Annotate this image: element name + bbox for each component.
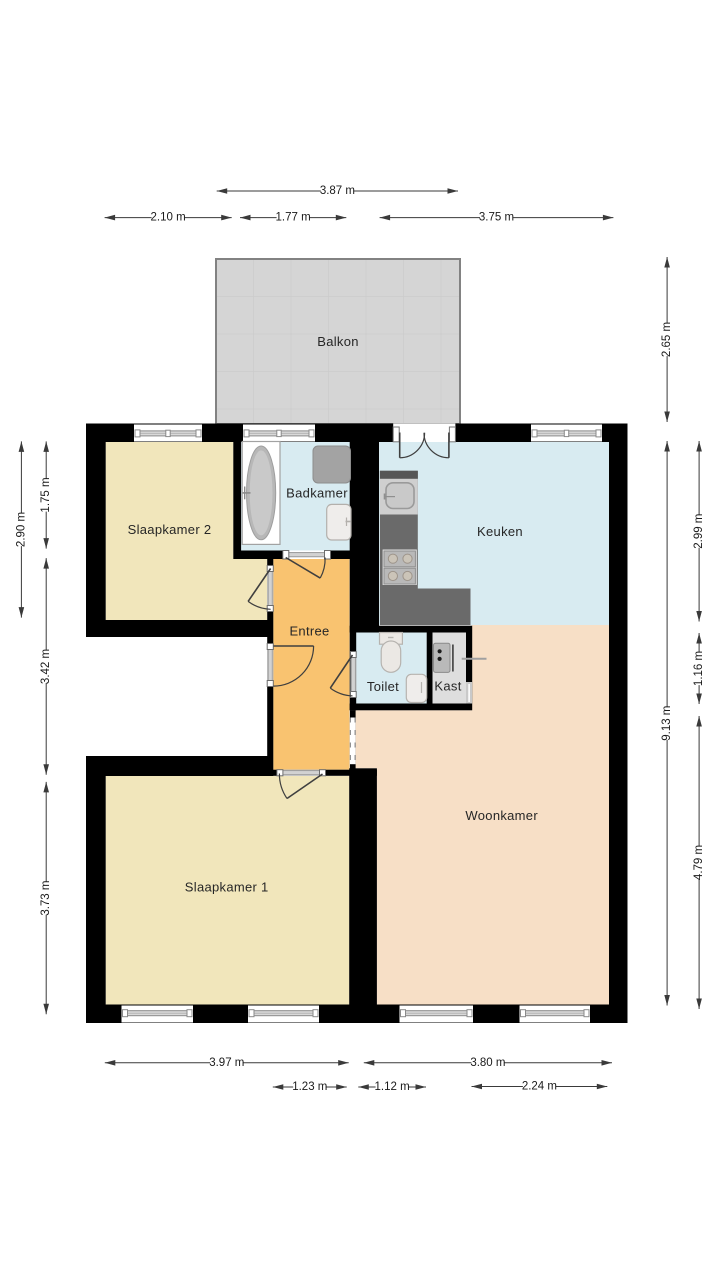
svg-text:2.90 m: 2.90 m [15,512,27,547]
svg-text:Toilet: Toilet [367,679,399,694]
svg-text:Woonkamer: Woonkamer [465,808,538,823]
svg-text:Slaapkamer 2: Slaapkamer 2 [128,522,212,537]
svg-text:Kast: Kast [434,678,461,693]
svg-text:1.23 m: 1.23 m [292,1081,327,1093]
svg-text:1.75 m: 1.75 m [40,477,52,512]
svg-text:1.16 m: 1.16 m [693,651,705,686]
svg-text:2.65 m: 2.65 m [661,322,673,357]
svg-text:3.87 m: 3.87 m [320,185,355,197]
svg-text:1.12 m: 1.12 m [375,1081,410,1093]
svg-text:3.75 m: 3.75 m [479,212,514,224]
svg-text:1.77 m: 1.77 m [276,212,311,224]
svg-text:3.97 m: 3.97 m [209,1057,244,1069]
svg-text:3.73 m: 3.73 m [40,881,52,916]
svg-text:2.24 m: 2.24 m [522,1081,557,1093]
svg-text:Balkon: Balkon [317,334,359,349]
svg-text:2.99 m: 2.99 m [693,514,705,549]
svg-text:4.79 m: 4.79 m [693,845,705,880]
svg-text:Badkamer: Badkamer [286,485,348,500]
svg-text:2.10 m: 2.10 m [151,212,186,224]
svg-text:9.13 m: 9.13 m [661,706,673,741]
svg-text:Entree: Entree [289,623,329,638]
svg-text:3.80 m: 3.80 m [470,1057,505,1069]
svg-text:Slaapkamer 1: Slaapkamer 1 [185,879,269,894]
svg-text:3.42 m: 3.42 m [40,649,52,684]
svg-text:Keuken: Keuken [477,524,523,539]
